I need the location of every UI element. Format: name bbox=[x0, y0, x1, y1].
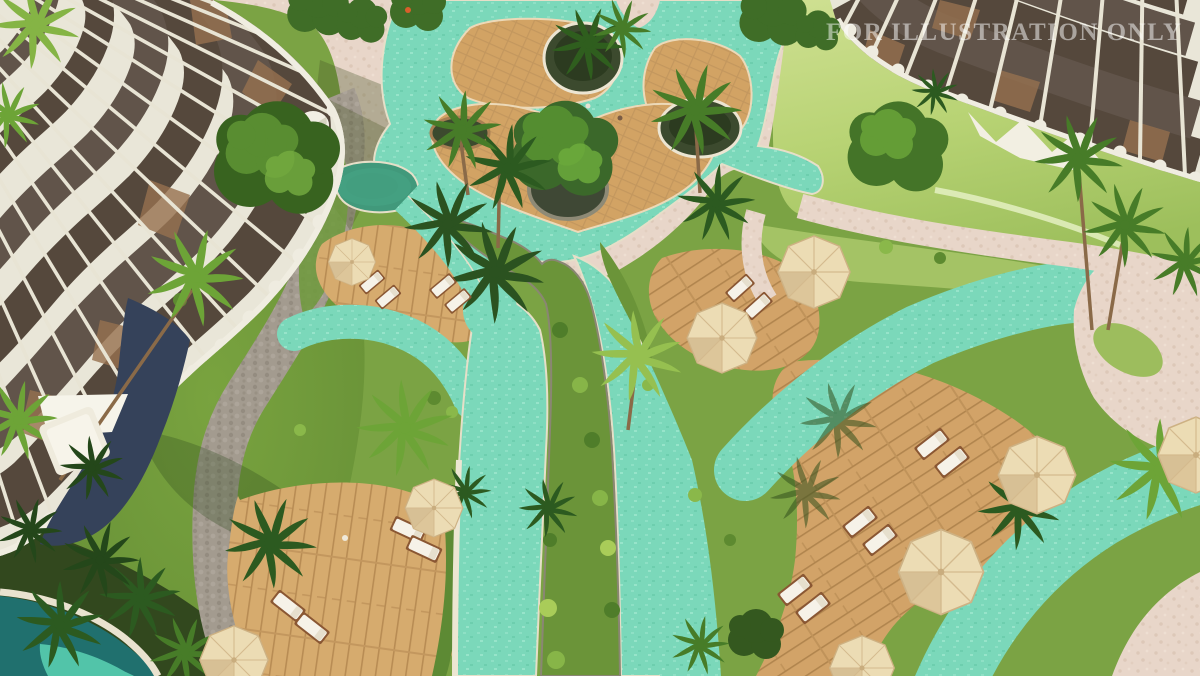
svg-text:FOR ILLUSTRATION ONLY: FOR ILLUSTRATION ONLY bbox=[826, 19, 1183, 46]
